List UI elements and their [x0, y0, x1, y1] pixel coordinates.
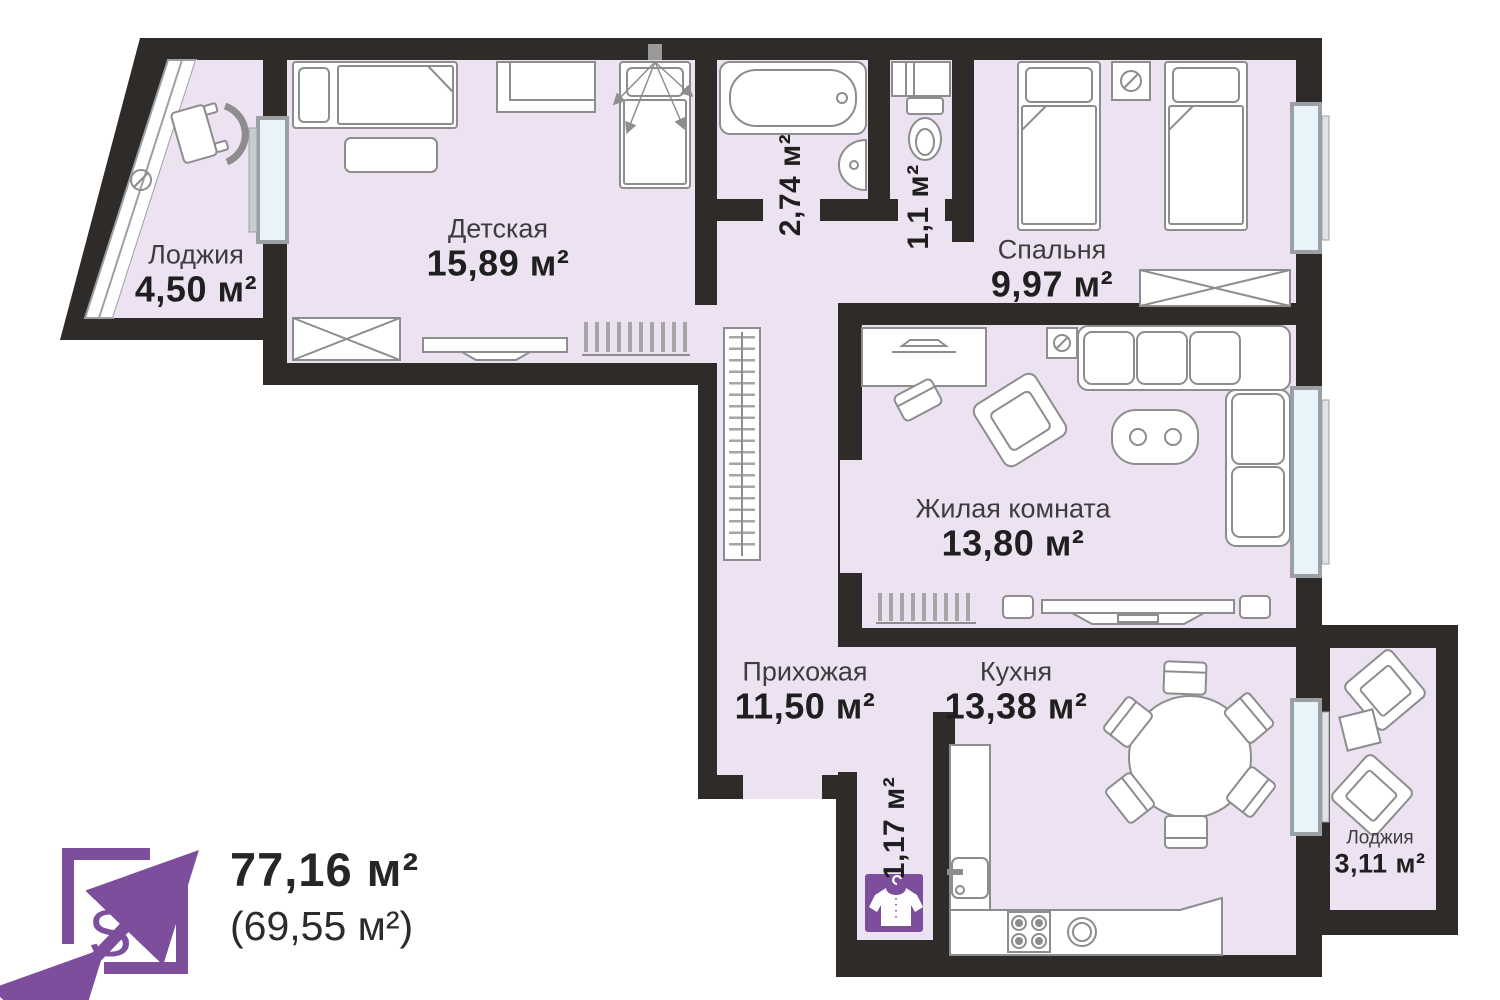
window-loggia-sill [249, 128, 257, 232]
door-bedroom [952, 242, 974, 303]
window-living-sill [1322, 400, 1329, 564]
summary-icon-spacer [58, 834, 208, 984]
bedroom-bed-right-icon [1165, 62, 1247, 230]
nursery-wardrobe-icon [293, 318, 400, 360]
door-living [840, 460, 862, 573]
stove-icon [1008, 912, 1050, 952]
loggia2-table-icon [1339, 709, 1380, 750]
door-nursery [695, 305, 717, 363]
summary-text: 77,16 м² (69,55 м²) [230, 842, 419, 950]
window-bedroom-sill [1322, 116, 1329, 240]
bedroom-bed-left-icon [1018, 62, 1100, 230]
living-speaker-left-icon [1003, 596, 1033, 618]
door-bathroom [763, 199, 820, 221]
bathtub-icon [720, 62, 866, 134]
nursery-bed-vertical-icon [616, 44, 690, 188]
window-kitchen [1292, 700, 1320, 834]
opening-kitchen [933, 647, 955, 712]
living-desk-icon [862, 328, 986, 386]
living-coffee-table-icon [1112, 410, 1198, 464]
nursery-desk-icon [497, 62, 595, 112]
hallway-hanger-rack-icon [724, 328, 760, 560]
nursery-bed-horizontal-icon [293, 62, 457, 128]
toilet-icon [907, 98, 943, 160]
nursery-table-icon [345, 138, 437, 172]
room-hallway-ext [838, 647, 933, 772]
bedroom-wardrobe-icon [1140, 270, 1290, 306]
washing-machine-icon [892, 62, 950, 96]
living-speaker-right-icon [1240, 596, 1270, 618]
closet-shirt-icon [865, 874, 923, 932]
window-kitchen-sill [1322, 712, 1329, 822]
area-summary: 77,16 м² (69,55 м²) [58, 834, 419, 984]
floor-plan-page: S Лоджия 4,50 м² Детская 15,89 м² 2,74 м… [0, 0, 1500, 1000]
fridge-icon [948, 858, 988, 898]
door-wc [898, 199, 945, 221]
bedroom-nightstand-icon [1112, 62, 1150, 100]
window-living [1292, 388, 1320, 576]
room-hallway-upper [717, 221, 952, 303]
living-area: (69,55 м²) [230, 903, 419, 950]
window-loggia-nursery [258, 118, 287, 242]
total-area: 77,16 м² [230, 842, 419, 897]
living-nightstand-icon [1047, 328, 1077, 358]
entrance-opening [743, 775, 822, 799]
window-bedroom [1292, 104, 1320, 252]
